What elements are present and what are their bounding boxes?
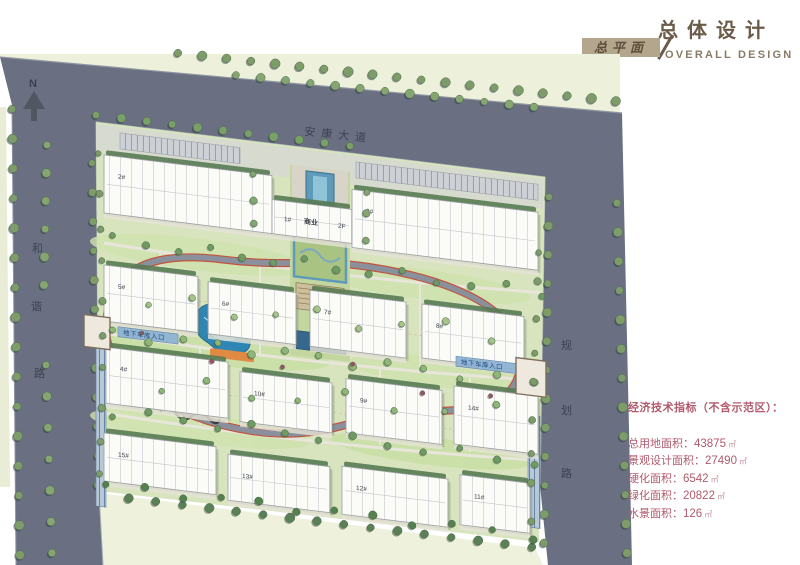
building-number: 10# <box>254 390 265 398</box>
building-number: 2# <box>118 174 126 182</box>
building-number: 6# <box>222 300 230 308</box>
indicator-row-paving: 硬化面积：6542㎡ <box>628 471 800 488</box>
building-number: 5# <box>118 284 126 292</box>
building-number: 11# <box>474 493 485 501</box>
building-number: 15# <box>118 452 129 460</box>
floors-label: 2F <box>338 223 346 231</box>
road-name-left-1: 和 <box>32 242 43 255</box>
indicators-title: 经济技术指标（不含示范区）： <box>628 399 800 415</box>
gate-east <box>516 358 546 398</box>
page-title: 总体设计 <box>658 14 794 43</box>
indicator-row-land: 总用地面积：43875㎡ <box>628 436 800 453</box>
building-number: 4# <box>120 366 128 374</box>
presentation-board: 总体设计 OVERALL DESIGN 总平面 <box>0 0 800 565</box>
road-name-left-3: 路 <box>34 367 45 380</box>
road-name-right-2: 划 <box>561 404 572 417</box>
svg-text:N: N <box>29 78 37 90</box>
road-name-right-1: 规 <box>561 338 572 352</box>
indicator-row-landscape: 景观设计面积：27490㎡ <box>628 453 800 470</box>
site-plan-svg: 2#3#5#6#7#8#4#10#9#14#15#13#12#11# 1# 商业… <box>0 45 640 565</box>
unit-sqm: ㎡ <box>704 510 712 519</box>
unit-sqm: ㎡ <box>717 492 725 501</box>
building-number: 7# <box>324 309 332 317</box>
unit-sqm: ㎡ <box>728 440 736 449</box>
indicator-row-water: 水景面积：126㎡ <box>628 506 800 523</box>
page-subtitle: OVERALL DESIGN <box>665 49 795 61</box>
unit-sqm: ㎡ <box>739 457 747 466</box>
building-number: 14# <box>468 405 479 413</box>
gate-west <box>84 315 110 350</box>
building-number: 12# <box>356 485 367 493</box>
unit-sqm: ㎡ <box>711 475 719 484</box>
building-number: 1# <box>284 216 292 224</box>
building-number: 9# <box>360 397 368 405</box>
building-number: 13# <box>242 473 253 481</box>
economic-indicators-panel: 经济技术指标（不含示范区）： 总用地面积：43875㎡ 景观设计面积：27490… <box>628 399 800 523</box>
master-plan-drawing: 2#3#5#6#7#8#4#10#9#14#15#13#12#11# 1# 商业… <box>0 45 640 565</box>
road-name-right-3: 路 <box>561 467 572 480</box>
road-name-left-2: 谐 <box>31 299 42 313</box>
indicator-row-green: 绿化面积：20822㎡ <box>628 488 800 505</box>
